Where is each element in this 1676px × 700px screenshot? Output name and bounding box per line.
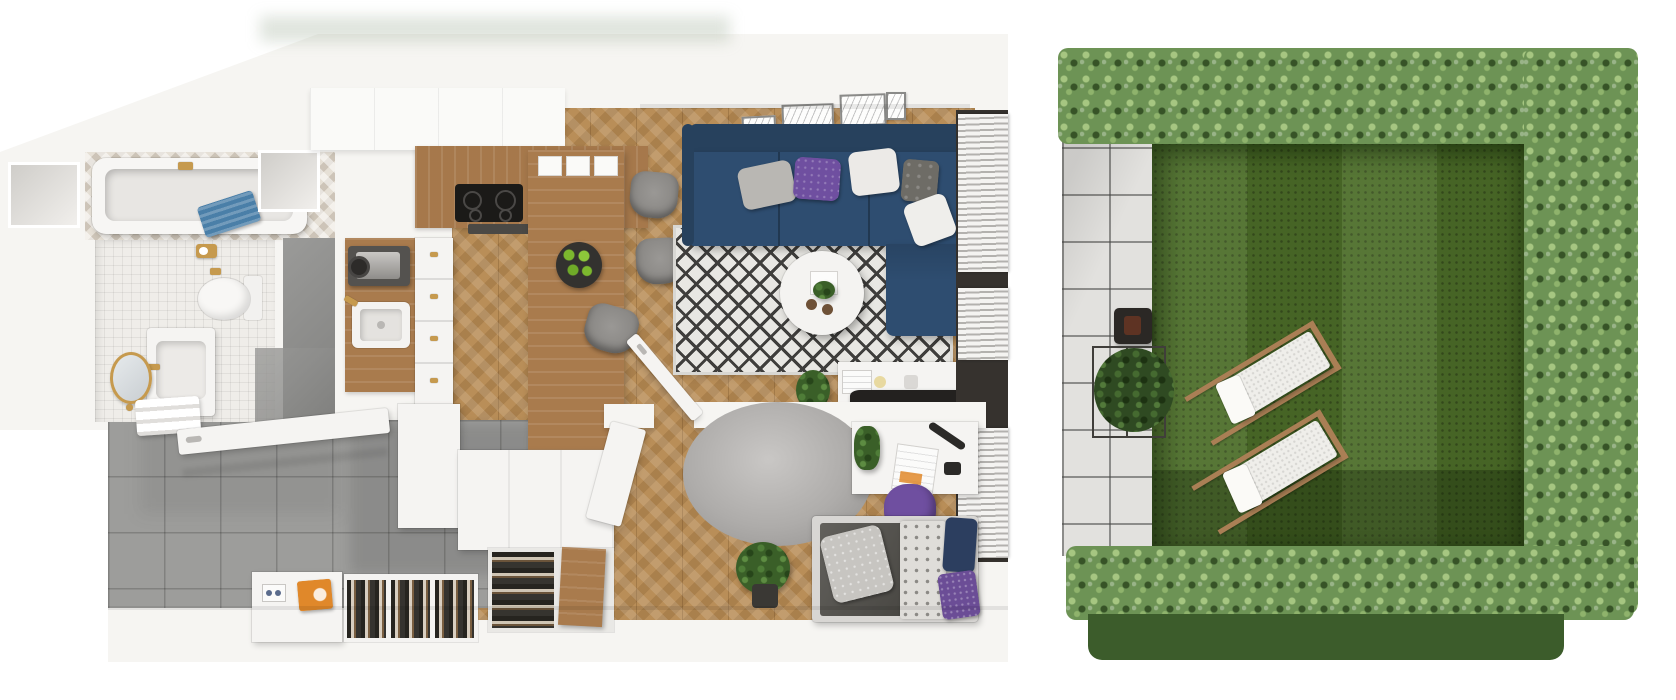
cushion-purple bbox=[793, 156, 842, 201]
book-illustration bbox=[899, 471, 922, 485]
placemat-1 bbox=[538, 156, 562, 176]
window-blinds-1 bbox=[958, 114, 1008, 272]
fruit-bowl-green-apples bbox=[556, 242, 602, 288]
remote bbox=[904, 375, 918, 389]
window-blinds-2 bbox=[958, 288, 1008, 360]
toilet-bowl bbox=[198, 278, 250, 320]
cushion-white-1 bbox=[847, 147, 900, 197]
door-handle bbox=[185, 436, 202, 444]
intercom-dot-1 bbox=[266, 590, 272, 596]
desk-lamp-base bbox=[944, 462, 961, 475]
cabinet-wood-door bbox=[558, 547, 606, 627]
round-coffee-table bbox=[780, 251, 864, 335]
floor-plan-render bbox=[0, 0, 1676, 700]
burner-3 bbox=[469, 209, 482, 222]
drawer-handle-1 bbox=[430, 252, 438, 257]
toilet-paper-holder bbox=[196, 244, 217, 258]
garden bbox=[1005, 0, 1676, 700]
burner-2 bbox=[495, 190, 516, 211]
lantern-glass bbox=[1124, 316, 1141, 335]
living-wall-shadow bbox=[640, 104, 970, 109]
desk-plant bbox=[854, 426, 880, 470]
shower-floor-patch bbox=[255, 348, 335, 422]
burner-1 bbox=[463, 191, 482, 210]
candle-2 bbox=[822, 304, 833, 315]
exterior-soft-shadow bbox=[260, 16, 730, 42]
coffee-machine bbox=[348, 246, 410, 286]
wall-niche-right bbox=[258, 150, 320, 212]
drawer-column bbox=[415, 238, 453, 404]
intercom-dot-2 bbox=[275, 590, 281, 596]
candle-yellow bbox=[874, 376, 886, 388]
towel-hook bbox=[126, 404, 133, 411]
kitchen-sink bbox=[352, 302, 410, 348]
bath-mixer-tap bbox=[178, 162, 193, 170]
bottom-wall-shadow bbox=[108, 606, 1008, 610]
purple-pillow bbox=[937, 570, 981, 621]
potted-shrub bbox=[1094, 348, 1174, 432]
hedge-outer-shadow-band bbox=[1088, 614, 1564, 660]
wash-basin bbox=[156, 341, 206, 399]
placemat-2 bbox=[566, 156, 590, 176]
burner-4 bbox=[499, 209, 512, 222]
induction-hob bbox=[455, 184, 523, 222]
cabinet-shoe-shelves bbox=[492, 552, 554, 628]
garden-lantern bbox=[1114, 308, 1152, 344]
desk-lamp-arm bbox=[927, 421, 966, 451]
paper-roll bbox=[199, 247, 208, 255]
placemat-3 bbox=[594, 156, 618, 176]
upper-cabinets bbox=[310, 88, 565, 150]
toilet-flush-button bbox=[210, 268, 221, 275]
wall-niche-left bbox=[8, 162, 80, 228]
hedge-right bbox=[1524, 48, 1638, 614]
interior-door-handle bbox=[636, 343, 648, 355]
coffee-machine-dial bbox=[348, 256, 370, 278]
sofa-armrest bbox=[682, 124, 694, 246]
sink-drain bbox=[377, 321, 385, 329]
toilet bbox=[196, 268, 266, 324]
plant-pot bbox=[752, 584, 778, 608]
patterned-blanket bbox=[900, 521, 946, 619]
tall-shoe-cabinet-front bbox=[488, 548, 614, 632]
intercom-box bbox=[262, 584, 286, 602]
sofa-back bbox=[690, 124, 968, 154]
table-plant bbox=[813, 281, 835, 299]
drawer-handle-3 bbox=[430, 336, 438, 341]
apartment bbox=[0, 0, 1010, 700]
drawer-handle-4 bbox=[430, 378, 438, 383]
low-cabinet bbox=[398, 404, 460, 528]
drawer-handle-2 bbox=[430, 294, 438, 299]
candle-1 bbox=[806, 299, 817, 310]
navy-pillow bbox=[942, 517, 978, 573]
hedge-bottom bbox=[1066, 546, 1634, 620]
round-gold-mirror bbox=[110, 352, 152, 404]
